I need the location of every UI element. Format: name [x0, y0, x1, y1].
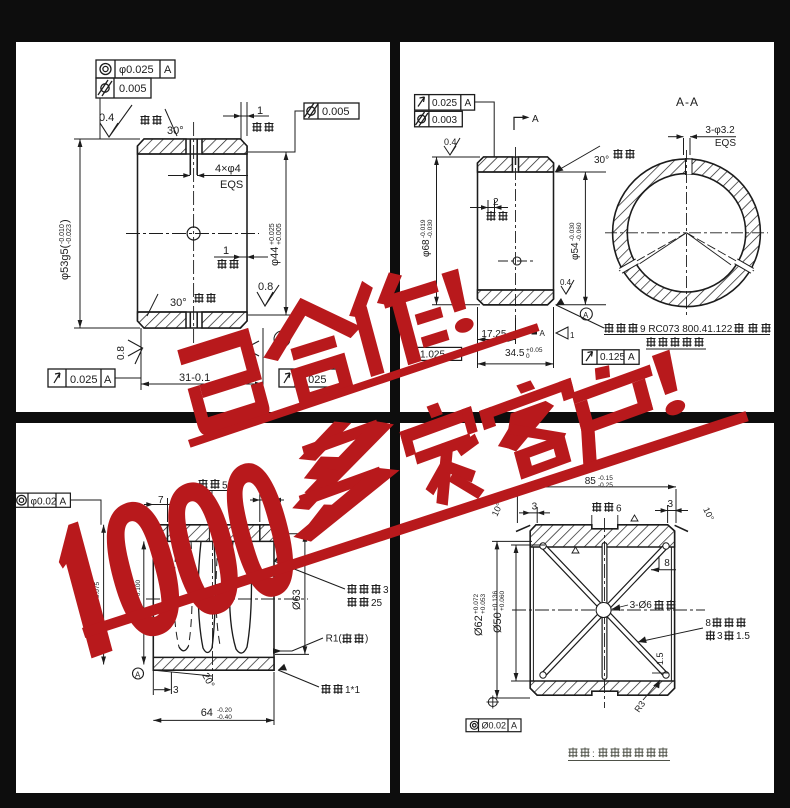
svg-text:0.4: 0.4 [444, 137, 457, 147]
svg-text:+0.060: +0.060 [499, 591, 506, 611]
svg-text:5: 5 [222, 481, 228, 492]
svg-text:A: A [465, 98, 472, 109]
svg-text:Ø50: Ø50 [492, 612, 504, 633]
svg-text:-0.20: -0.20 [217, 707, 232, 714]
svg-text:φ0.025: φ0.025 [119, 64, 154, 76]
svg-text:EQS: EQS [715, 138, 736, 149]
svg-text:3: 3 [173, 685, 179, 696]
svg-text:): ) [365, 634, 368, 645]
svg-text:3-Ø6: 3-Ø6 [630, 600, 653, 611]
svg-text:3: 3 [717, 631, 723, 642]
svg-text:9 RC073 800.41.122: 9 RC073 800.41.122 [640, 324, 733, 335]
svg-text:φ54: φ54 [570, 242, 581, 260]
svg-text:1: 1 [223, 245, 229, 257]
svg-text:0.4: 0.4 [560, 278, 572, 287]
svg-text:Ø62: Ø62 [473, 615, 485, 636]
svg-text:A: A [60, 497, 67, 508]
svg-text:8: 8 [705, 618, 711, 629]
svg-text:A: A [135, 671, 141, 680]
svg-text:A: A [540, 329, 546, 338]
svg-text:-0.030: -0.030 [427, 219, 434, 238]
svg-text:0.8: 0.8 [116, 346, 127, 360]
svg-text:A: A [104, 374, 112, 386]
svg-text:0.003: 0.003 [432, 115, 457, 126]
svg-text:-0.030: -0.030 [569, 222, 576, 241]
svg-text:+0.025: +0.025 [269, 223, 276, 245]
svg-text:3: 3 [532, 502, 538, 513]
svg-text:+0.100: +0.100 [135, 580, 142, 600]
svg-text:-0.023: -0.023 [66, 224, 73, 244]
svg-text:-0.019: -0.019 [420, 219, 427, 238]
svg-text:1.5: 1.5 [655, 652, 665, 665]
svg-text:0.8: 0.8 [258, 281, 273, 293]
svg-text:φ53g5(: φ53g5( [59, 244, 71, 280]
svg-text:+0.053: +0.053 [480, 594, 487, 614]
svg-text:3-φ3.2: 3-φ3.2 [705, 125, 735, 136]
svg-text:+0.136: +0.136 [492, 591, 499, 611]
svg-text:0.4: 0.4 [99, 112, 114, 124]
svg-text:A: A [511, 721, 517, 731]
svg-text:85: 85 [585, 476, 597, 487]
svg-text:25: 25 [371, 598, 383, 609]
svg-text:R1(: R1( [326, 634, 343, 645]
svg-text:A: A [164, 64, 172, 76]
svg-text:0.125: 0.125 [600, 352, 625, 363]
svg-text:30°: 30° [594, 155, 609, 166]
svg-text:8: 8 [664, 558, 670, 569]
svg-text:0.005: 0.005 [322, 106, 350, 118]
svg-text:Ø0.02: Ø0.02 [482, 721, 507, 731]
svg-text:1: 1 [257, 105, 263, 117]
svg-text:+0.005: +0.005 [276, 223, 283, 245]
svg-text:0: 0 [526, 353, 530, 360]
svg-text:7: 7 [262, 490, 268, 501]
svg-text:Ø63: Ø63 [291, 589, 303, 610]
svg-text:+0.072: +0.072 [473, 594, 480, 614]
svg-text:-0.010: -0.010 [59, 224, 66, 244]
svg-text:1: 1 [570, 331, 575, 340]
svg-text:1.025: 1.025 [420, 350, 445, 361]
svg-text:0.025: 0.025 [299, 374, 327, 386]
svg-text:-0.060: -0.060 [576, 222, 583, 241]
svg-text:A: A [628, 352, 635, 363]
svg-text:φ0.02: φ0.02 [31, 497, 57, 508]
svg-text:φ68: φ68 [421, 239, 432, 257]
svg-text:1.5: 1.5 [736, 631, 750, 642]
svg-text:Ø72: Ø72 [87, 602, 99, 623]
svg-text:0.005: 0.005 [119, 83, 147, 95]
svg-text:A-A: A-A [676, 95, 699, 109]
svg-text:): ) [59, 219, 71, 223]
svg-text:+0.119: +0.119 [128, 580, 135, 600]
svg-text:31-0.1: 31-0.1 [179, 372, 210, 384]
svg-text:1*1: 1*1 [345, 685, 360, 696]
svg-text:φ44: φ44 [269, 247, 281, 266]
svg-text::: : [592, 749, 595, 760]
svg-text:3: 3 [668, 499, 674, 510]
svg-text:EQS: EQS [220, 179, 243, 191]
svg-text:-0.15: -0.15 [598, 475, 613, 482]
svg-text:R3: R3 [632, 699, 647, 714]
svg-text:0.025: 0.025 [70, 374, 98, 386]
svg-text:3: 3 [383, 585, 389, 596]
svg-text:4×φ4: 4×φ4 [215, 163, 241, 175]
svg-text:-0.25: -0.25 [598, 482, 613, 489]
svg-text:10°: 10° [701, 506, 716, 523]
svg-text:Ø60: Ø60 [128, 600, 140, 621]
svg-text:A: A [532, 114, 539, 125]
svg-text:0.025: 0.025 [432, 98, 457, 109]
svg-text:30°: 30° [170, 297, 187, 309]
svg-text:64: 64 [201, 707, 213, 719]
svg-text:6: 6 [616, 504, 622, 515]
svg-text:20°: 20° [199, 671, 216, 690]
svg-text:10°: 10° [490, 501, 505, 518]
svg-text:+0.094: +0.094 [87, 582, 94, 602]
svg-text:+0.075: +0.075 [94, 582, 101, 602]
svg-text:34.5: 34.5 [505, 348, 525, 359]
